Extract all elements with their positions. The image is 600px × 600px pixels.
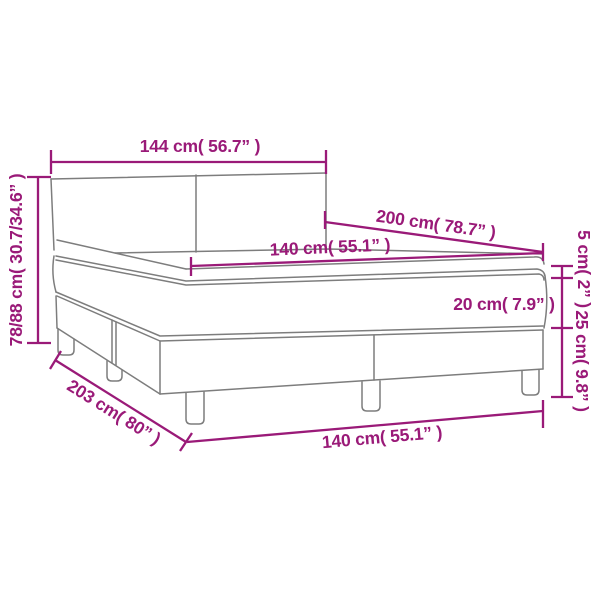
dim-144-label: 144 cm( 56.7” ): [140, 136, 261, 156]
dim-25-label: 25 cm( 9.8” ): [572, 310, 592, 411]
bed-leg-front-middle: [362, 381, 380, 411]
bed-leg-front-corner: [186, 392, 204, 424]
dim-140-bottom-label: 140 cm( 55.1” ): [321, 422, 443, 452]
dimension-frame-length: 203 cm( 80” ): [50, 351, 192, 451]
dimension-diagram: 144 cm( 56.7” ) 78/88 cm( 30.7/34.6” ) 2…: [0, 0, 600, 600]
dim-203-tick-left: [50, 351, 61, 369]
dim-7888-label: 78/88 cm( 30.7/34.6” ): [6, 174, 26, 347]
base-left-end-edge: [56, 296, 57, 328]
bed-leg-front-right: [522, 370, 539, 395]
base-bottom-front-edge: [160, 369, 543, 394]
headboard-left-edge: [51, 179, 54, 250]
dimension-total-height: 78/88 cm( 30.7/34.6” ): [6, 174, 51, 347]
dim-5-label: 5 cm( 2” ): [574, 230, 594, 308]
dimension-headboard-width: 144 cm( 56.7” ): [51, 136, 326, 174]
dim-20-label: 20 cm( 7.9” ): [453, 294, 554, 314]
dimension-frame-width: 140 cm( 55.1” ): [187, 400, 543, 452]
mattress-left-end-edge: [53, 256, 56, 292]
headboard-top-edge: [51, 173, 326, 179]
topper-seam-line-2: [56, 260, 544, 285]
dim-140-top-label: 140 cm( 55.1” ): [269, 234, 390, 259]
dimension-lines: 144 cm( 56.7” ) 78/88 cm( 30.7/34.6” ) 2…: [6, 136, 594, 452]
bed-diagram-canvas: 144 cm( 56.7” ) 78/88 cm( 30.7/34.6” ) 2…: [0, 0, 600, 600]
dim-203-line: [55, 360, 186, 442]
